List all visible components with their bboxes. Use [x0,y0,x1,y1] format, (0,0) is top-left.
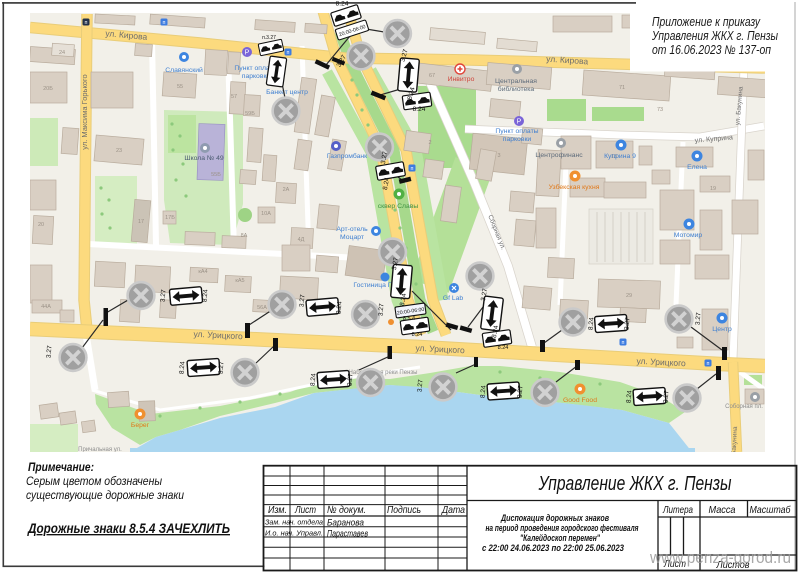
svg-text:Узбекская кухня: Узбекская кухня [549,183,600,191]
svg-text:"Калейдоскоп перемен": "Калейдоскоп перемен" [520,533,601,543]
svg-text:кА4: кА4 [198,269,207,275]
svg-text:24: 24 [59,50,65,56]
svg-text:Дорожные знаки 8.5.4 ЗАЧЕХЛИТЬ: Дорожные знаки 8.5.4 ЗАЧЕХЛИТЬ [27,521,230,536]
svg-text:3.27: 3.27 [377,303,385,317]
svg-text:Зам. нач. отдела: Зам. нач. отдела [265,518,323,527]
svg-text:Приложение к приказу: Приложение к приказу [652,15,761,29]
svg-text:56А: 56А [257,305,267,311]
svg-text:71: 71 [619,85,625,91]
svg-text:Центр: Центр [712,326,732,333]
svg-text:8.24: 8.24 [498,345,509,351]
svg-text:№ докум.: № докум. [327,504,366,516]
svg-text:Газпромбанк: Газпромбанк [327,152,367,160]
svg-text:8А: 8А [241,233,248,239]
svg-text:57: 57 [231,94,237,100]
svg-text:Центрофинанс: Центрофинанс [535,152,583,159]
svg-text:20: 20 [38,222,44,228]
svg-text:29: 29 [626,293,632,299]
svg-text:P: P [517,119,522,126]
svg-text:Масштаб: Масштаб [750,504,792,516]
svg-text:существующие дорожные знаки: существующие дорожные знаки [26,488,184,502]
svg-text:4Д: 4Д [298,237,305,243]
svg-text:55: 55 [177,84,183,90]
svg-text:8.24: 8.24 [479,385,487,399]
svg-text:Арт-отель: Арт-отель [336,226,368,233]
svg-text:Масса: Масса [709,504,736,516]
svg-text:Параставев: Параставев [327,529,368,540]
svg-text:Серым цветом обозначены: Серым цветом обозначены [26,474,162,488]
svg-text:8.24: 8.24 [201,289,209,303]
svg-text:55Б: 55Б [211,172,221,178]
svg-text:3.27: 3.27 [516,385,524,399]
svg-text:Лист: Лист [294,504,316,516]
svg-text:10А: 10А [261,211,271,217]
svg-text:3.27: 3.27 [159,289,167,303]
svg-text:Изм.: Изм. [268,504,287,516]
svg-text:Баранова: Баранова [327,518,364,529]
svg-text:Дата: Дата [441,504,465,516]
svg-text:8.5.4: 8.5.4 [403,316,415,322]
svg-text:59Б: 59Б [245,111,255,117]
svg-text:Банкет центр: Банкет центр [266,89,308,96]
svg-text:парковки: парковки [242,73,271,80]
svg-text:3: 3 [497,153,500,159]
svg-text:P: P [245,50,250,57]
svg-text:Центральная: Центральная [495,78,537,85]
svg-text:8.24: 8.24 [178,361,186,375]
svg-text:3.27: 3.27 [298,294,306,308]
svg-text:Инвитро: Инвитро [448,76,475,83]
svg-text:ул. Максима Горького: ул. Максима Горького [80,74,89,149]
svg-text:8.24: 8.24 [336,1,349,8]
svg-text:8.24: 8.24 [413,106,426,113]
svg-text:п.3.27: п.3.27 [262,35,276,41]
svg-text:3.27: 3.27 [623,317,631,331]
svg-text:8.24: 8.24 [625,390,633,404]
svg-text:44А: 44А [41,304,51,310]
svg-text:Соборная пл.: Соборная пл. [725,404,763,410]
svg-text:Пункт оплаты: Пункт оплаты [495,128,538,135]
svg-text:67: 67 [429,73,435,79]
svg-text:8.24: 8.24 [587,317,595,331]
svg-text:от 16.06.2023 № 137-оп: от 16.06.2023 № 137-оп [652,43,771,57]
svg-text:Подпись: Подпись [387,504,421,516]
svg-text:Моцарт: Моцарт [340,234,364,241]
svg-text:п: п [85,20,88,26]
svg-text:3.27: 3.27 [346,373,354,387]
svg-text:Управления ЖКХ г. Пензы: Управления ЖКХ г. Пензы [651,29,778,43]
svg-text:Берег: Берег [131,422,150,429]
svg-text:www.penza-gorod.ru: www.penza-gorod.ru [649,549,791,567]
svg-text:3.27: 3.27 [416,379,424,393]
svg-text:17Б: 17Б [165,215,175,221]
svg-text:Примечание:: Примечание: [28,460,94,474]
svg-text:И.о. нач. Управл.: И.о. нач. Управл. [265,529,323,538]
svg-text:с 22:00 24.06.2023 по 22:00 25: с 22:00 24.06.2023 по 22:00 25.06.2023 [482,543,624,553]
svg-text:Школа № 49: Школа № 49 [184,155,224,162]
svg-text:19: 19 [710,186,716,192]
svg-text:Управление ЖКХ г. Пензы: Управление ЖКХ г. Пензы [538,472,732,495]
svg-text:8.24: 8.24 [335,301,343,315]
svg-text:Gf Lab: Gf Lab [443,295,464,302]
svg-text:73: 73 [657,107,663,113]
svg-text:Литера: Литера [662,504,693,516]
svg-text:сквер Славы: сквер Славы [378,203,419,210]
svg-text:Куприна 9: Куприна 9 [604,153,636,160]
svg-text:2А: 2А [283,187,290,193]
svg-text:на период проведения городско: на период проведения городского фестивал… [486,523,639,533]
svg-text:Диспокация дорожных знаков: Диспокация дорожных знаков [500,513,609,523]
svg-text:17: 17 [138,219,144,225]
svg-text:3.27: 3.27 [217,361,225,375]
svg-text:Good Food: Good Food [563,397,597,404]
svg-text:Мотомир: Мотомир [674,232,703,239]
svg-text:8.24: 8.24 [412,332,423,338]
svg-text:23: 23 [116,148,122,154]
svg-text:8.24: 8.24 [309,373,317,387]
svg-text:Елена: Елена [687,164,707,171]
svg-text:Славянский: Славянский [165,66,203,74]
svg-text:парковки: парковки [503,136,532,143]
svg-text:3.27: 3.27 [662,390,670,404]
svg-text:кА5: кА5 [235,278,244,284]
svg-text:Гостиница П: Гостиница П [353,282,392,289]
svg-text:3.27: 3.27 [694,312,702,326]
svg-text:20Б: 20Б [43,86,53,92]
svg-text:2: 2 [428,140,431,146]
svg-text:библиотека: библиотека [498,85,535,93]
svg-text:3.27: 3.27 [45,345,53,359]
